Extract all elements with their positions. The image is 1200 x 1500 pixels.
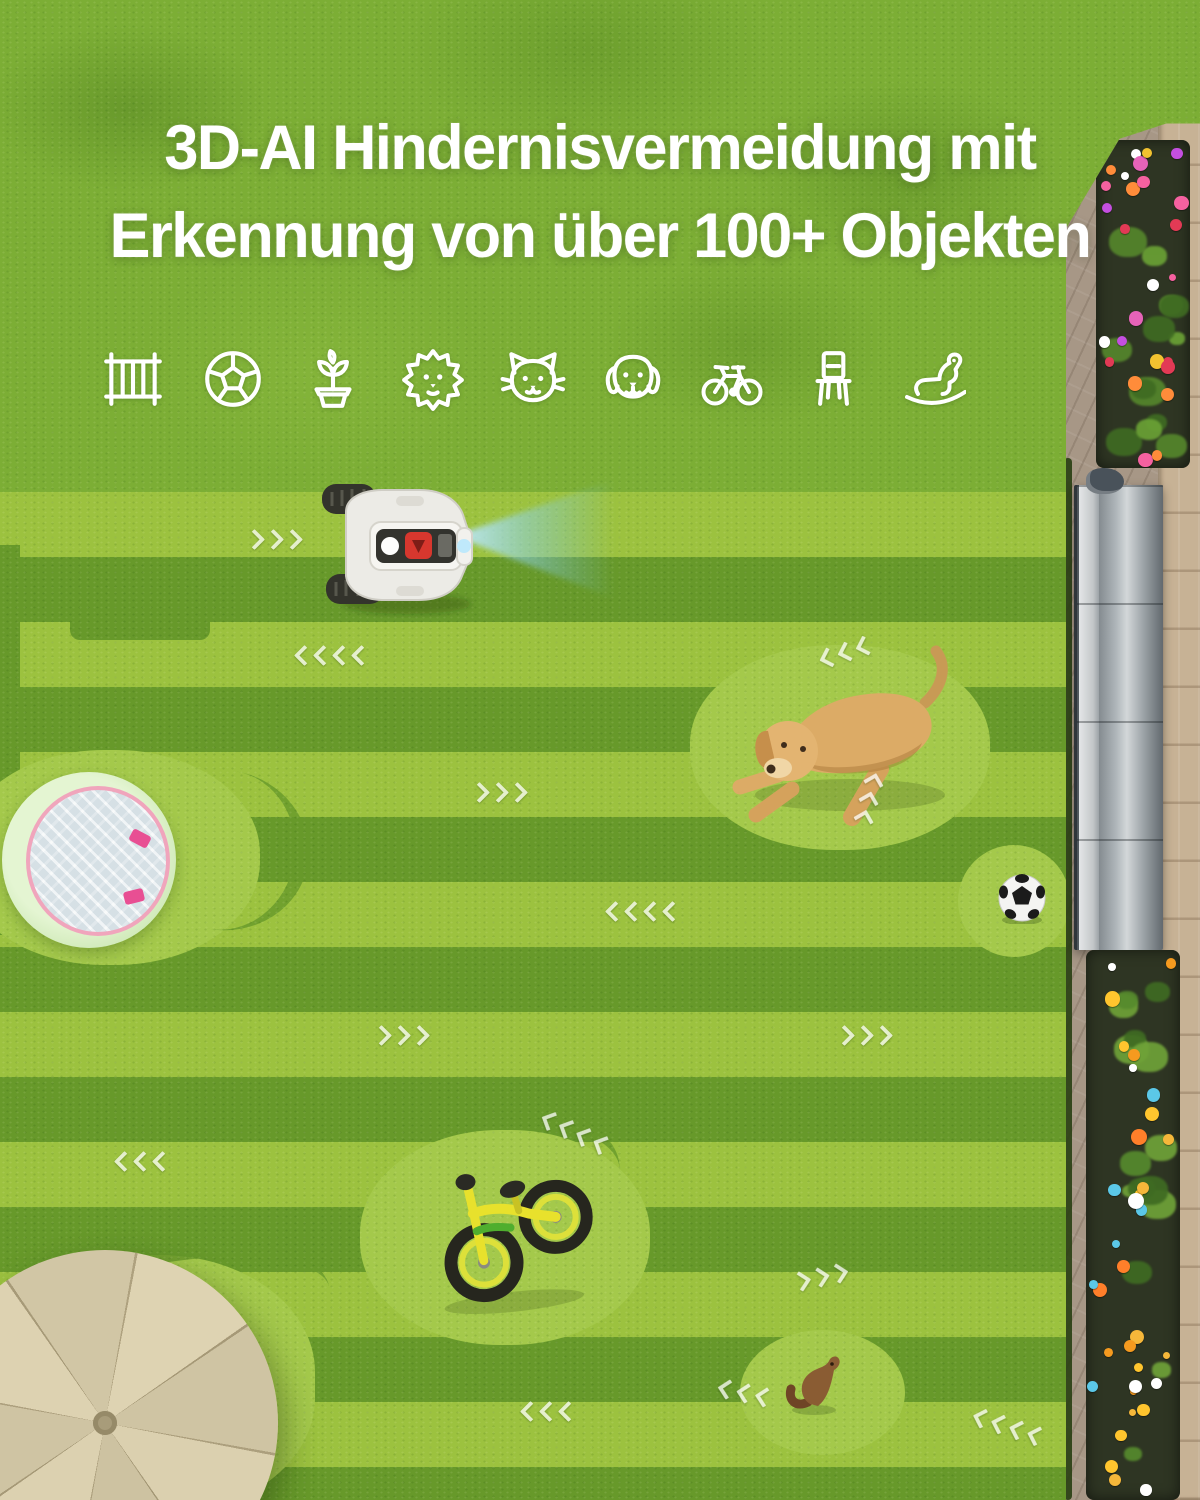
chevron (643, 901, 664, 922)
soccer-ball (996, 872, 1048, 924)
flower-dot (1108, 963, 1116, 971)
hedgehog-icon (400, 346, 466, 412)
flower-dot (1147, 279, 1159, 291)
soccer-ball-icon (200, 346, 266, 412)
flower-dot (1134, 1363, 1143, 1372)
pool-water (26, 786, 170, 936)
chevron (557, 1401, 578, 1422)
path-arrow-icon (297, 648, 369, 663)
flower-dot (1104, 1348, 1113, 1357)
product-image: 3D-AI Hindernisvermeidung mit Erkennung … (0, 0, 1200, 1500)
flower-dot (1087, 1381, 1098, 1392)
flower-dot (1129, 311, 1144, 326)
mower-camera-lens (457, 539, 471, 553)
flower-dot (1089, 1280, 1098, 1289)
flower-dot (1161, 388, 1174, 401)
chevron (332, 645, 353, 666)
chevron (313, 645, 334, 666)
flower-dot (1151, 1378, 1162, 1389)
flower-dot (1105, 357, 1115, 367)
foliage-blob (1124, 1447, 1142, 1461)
flower-dot (1152, 450, 1162, 460)
foliage-blob (1152, 1362, 1171, 1377)
foliage-blob (1136, 419, 1162, 440)
flower-dot (1166, 958, 1177, 969)
greenhouse-roof (1074, 485, 1163, 950)
bike-seat-post (514, 1195, 519, 1211)
path-arrow-icon (837, 1028, 890, 1043)
dog-tail (925, 651, 942, 703)
path-arrow-icon (523, 1404, 576, 1419)
flower-dot (1129, 1409, 1136, 1416)
foliage-blob (1145, 982, 1170, 1002)
detected-objects-icons-row (0, 346, 1066, 412)
chevron (519, 1401, 540, 1422)
headline-line-1: 3D-AI Hindernisvermeidung mit (18, 104, 1182, 192)
chevron (294, 645, 315, 666)
dog-icon (600, 346, 666, 412)
fence-icon (100, 346, 166, 412)
chevron (624, 901, 645, 922)
chevron (538, 1401, 559, 1422)
greenhouse-wall (1079, 485, 1099, 950)
flower-dot (1145, 1107, 1159, 1121)
mow-path-patch (70, 575, 210, 640)
rocking-horse-icon (900, 346, 966, 412)
chevron (281, 529, 302, 550)
path-arrow-icon (117, 1154, 170, 1169)
kids-balance-bike (410, 1153, 606, 1331)
flower-dot (1119, 1041, 1129, 1051)
flower-dot (1147, 1088, 1161, 1102)
path-arrow-icon (608, 904, 680, 919)
headline-line-2: Erkennung von über 100+ Objekten (18, 192, 1182, 280)
chevron (852, 1025, 873, 1046)
chevron (468, 782, 489, 803)
flower-dot (1163, 1134, 1174, 1145)
flower-dot (1124, 1340, 1137, 1353)
flower-dot (1137, 1404, 1149, 1416)
chevron (151, 1151, 172, 1172)
bike-seat (498, 1178, 528, 1201)
headline: 3D-AI Hindernisvermeidung mit Erkennung … (18, 104, 1182, 280)
foliage-blob (1160, 295, 1189, 318)
flower-dot (1140, 1484, 1151, 1495)
flower-dot (1138, 453, 1152, 467)
flower-dot (1108, 1184, 1120, 1196)
parasol-hub (93, 1411, 117, 1435)
chevron (262, 529, 283, 550)
chevron (871, 1025, 892, 1046)
path-arrow-icon (247, 532, 300, 547)
flower-dot (1129, 1064, 1136, 1071)
flower-dot (1099, 336, 1110, 347)
flower-dot (1129, 1380, 1142, 1393)
mower-vision-beam (454, 480, 614, 598)
dog-eye (781, 742, 787, 748)
chevron (833, 1025, 854, 1046)
flower-dot (1128, 1193, 1144, 1209)
flower-dot (1117, 1260, 1130, 1273)
path-arrow-icon (374, 1028, 427, 1043)
flower-dot (1105, 991, 1120, 1006)
chevron (662, 901, 683, 922)
flower-dot (1112, 1240, 1120, 1248)
flower-dot (1109, 1474, 1122, 1487)
cat-icon (500, 346, 566, 412)
squirrel (780, 1340, 850, 1420)
garden-bird (1086, 468, 1124, 494)
chevron (506, 782, 527, 803)
squirrel-body (802, 1357, 840, 1406)
potted-plant-icon (300, 346, 366, 412)
chevron (132, 1151, 153, 1172)
chair-icon (800, 346, 866, 412)
mower-power-button (381, 537, 399, 555)
foliage-blob (1143, 316, 1174, 341)
flower-bed-bottom (1086, 950, 1180, 1500)
flower-dot (1105, 1460, 1118, 1473)
chevron (605, 901, 626, 922)
flower-dot (1128, 1049, 1140, 1061)
chevron (487, 782, 508, 803)
robot-mower (312, 468, 622, 628)
garden-deck-strip (1066, 118, 1200, 1500)
squirrel-eye (830, 1362, 834, 1366)
chevron (370, 1025, 391, 1046)
chevron (351, 645, 372, 666)
dog-nose (767, 765, 776, 774)
flower-dot (1161, 360, 1175, 374)
chevron (408, 1025, 429, 1046)
bike-handlebar (455, 1173, 477, 1191)
flower-dot (1163, 1352, 1170, 1359)
chevron (243, 529, 264, 550)
dog-eye (800, 746, 806, 752)
chevron (389, 1025, 410, 1046)
path-arrow-icon (472, 785, 525, 800)
labrador-dog (730, 635, 980, 835)
chevron (113, 1151, 134, 1172)
bicycle-icon (700, 346, 766, 412)
flower-dot (1115, 1430, 1127, 1442)
kiddie-pool (2, 772, 176, 948)
flower-dot (1131, 1129, 1147, 1145)
